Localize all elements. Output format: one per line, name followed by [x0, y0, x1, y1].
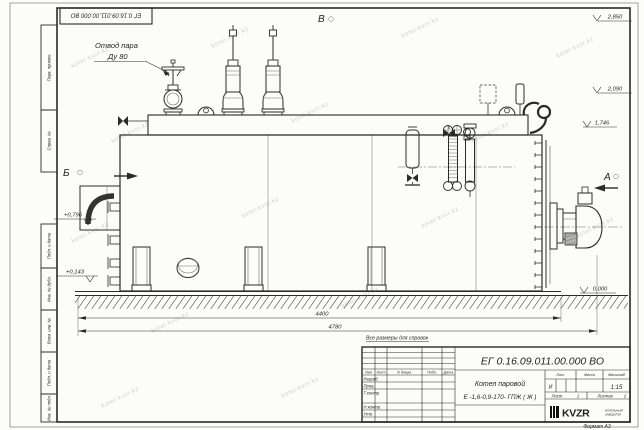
lit-header: Лит.: [555, 373, 564, 377]
format-label: Формат А3: [583, 424, 611, 430]
logo-text: KVZR: [562, 408, 590, 420]
steam-outlet-label-line2: Ду 80: [107, 52, 128, 61]
elevation-value: 0,000: [593, 287, 608, 293]
boiler-body: [120, 135, 542, 291]
list-label: Лист: [551, 393, 563, 398]
reference-note: Все размеры для справок: [366, 336, 429, 342]
col-data: Дата: [443, 370, 453, 374]
manhole-hatch: [177, 258, 199, 278]
flipped-doc-number-box: ЕГ 0.16.09.011.00.000 ВО: [60, 8, 152, 24]
stamp-inv-podl: Инв. № подл.: [47, 395, 52, 421]
support-leg: [244, 247, 263, 292]
support-legs: [132, 247, 386, 292]
row-razrab: Разраб.: [364, 376, 379, 381]
flipped-doc-number: ЕГ 0.16.09.011.00.000 ВО: [70, 12, 141, 18]
row-utv: Утв.: [364, 411, 374, 416]
support-leg: [367, 247, 386, 292]
title-doc-number: ЕГ 0.16.09.011.00.000 ВО: [481, 356, 604, 368]
safety-valve: [222, 25, 244, 115]
listov-value: 2: [623, 393, 627, 398]
view-marker-v: В: [318, 14, 333, 25]
col-izm: Изм: [365, 370, 372, 374]
drum-top-band: [148, 115, 528, 135]
steam-outlet-label-line1: Отвод пара: [95, 41, 138, 50]
phantom-outline: [480, 85, 496, 103]
dimension-4780: 4780: [78, 325, 597, 333]
lifting-lug-icon: [499, 107, 515, 115]
elevation-2850: 2,850: [593, 15, 632, 22]
lit-value: И: [549, 385, 553, 391]
elevation-value: 1,746: [595, 121, 610, 127]
col-podp: Подп.: [427, 370, 437, 374]
row-tkontr: Т.контр.: [364, 390, 381, 395]
row-nkontr: Н.контр.: [364, 404, 382, 409]
view-marker-a: А: [594, 172, 618, 192]
rear-nozzles: [108, 201, 120, 287]
ground-line: [75, 292, 628, 309]
lifting-lug-icon: [198, 107, 214, 115]
elevation-value: +0,143: [66, 270, 85, 276]
stamp-sprav-no: Справ. №: [47, 131, 52, 150]
view-marker-b: Б: [63, 168, 138, 180]
elevation-1746: 1,746: [583, 121, 617, 128]
dimension-4400: 4400: [78, 312, 561, 320]
manufacturer-logo: KVZR КОТЕЛЬНЫЙ ЗАВОД РЭП: [550, 406, 623, 420]
elevation-value: 2,850: [607, 15, 623, 21]
view-a-label: А: [603, 172, 611, 183]
product-name-line1: Котел паровой: [475, 380, 525, 388]
reference-note-text: Все размеры для справок: [366, 336, 429, 342]
smoke-box: [80, 186, 120, 230]
steam-outlet-valve: [162, 60, 184, 115]
list-value: 1: [577, 393, 579, 398]
burner-motor: [565, 233, 577, 245]
product-name-line2: Е -1,6-0,9-170- ГПЖ ( Ж ): [463, 394, 536, 401]
elevation-2090: 2,090: [593, 87, 632, 94]
row-prov: Пров.: [364, 383, 375, 388]
masshtab-value: 1:15: [611, 385, 623, 391]
stamp-perv-primen: Перв. примен.: [47, 54, 52, 82]
massa-header: Масса: [584, 373, 595, 377]
listov-label: Листов: [596, 393, 613, 398]
stamp-podp-data-1: Подп. и дата: [47, 232, 52, 259]
steam-outlet-annotation: Отвод пара Ду 80: [94, 41, 170, 76]
dimension-value: 4780: [329, 325, 343, 331]
logo-subtext-line2: ЗАВОД РЭП: [605, 413, 622, 417]
burner-assembly: [544, 187, 622, 249]
elevation-marks: 2,850 2,090 1,746 0,000 +0,796: [54, 15, 632, 294]
col-list: Лист: [375, 370, 385, 374]
drain-stub-valve: [118, 116, 148, 126]
stamp-vzam-inv: Взам. инв. №: [47, 318, 52, 344]
casing-seams: [268, 135, 476, 291]
safety-valve: [262, 25, 284, 115]
view-v-label: В: [318, 14, 325, 25]
elevation-value: +0,796: [64, 213, 83, 219]
elevation-0143: +0,143: [56, 270, 98, 283]
elevation-0000: 0,000: [580, 287, 616, 294]
dimension-value: 4400: [316, 312, 330, 318]
view-b-label: Б: [63, 168, 70, 179]
technical-drawing: ЕГ 0.16.09.011.00.000 ВО Перв. примен. С…: [0, 0, 644, 430]
elevation-value: 2,090: [607, 87, 623, 93]
margin-stamp-column: Перв. примен. Справ. № Подп. и дата Инв.…: [41, 25, 57, 422]
masshtab-header: Масштаб: [608, 373, 626, 377]
stamp-inv-dubl: Инв. № дубл.: [47, 276, 52, 302]
title-block: Изм Лист N докум. Подп. Дата Разраб. Про…: [362, 347, 630, 422]
front-plate-bolts: [535, 141, 542, 289]
support-leg: [132, 247, 151, 292]
drawing-sheet: kotel-kvzr.kz kotel-kvzr.kz kotel-kvzr.k…: [0, 0, 644, 430]
water-column-vessel: [405, 127, 420, 185]
col-dokum: N докум.: [397, 370, 412, 374]
stamp-podp-data-2: Подп. и дата: [47, 359, 52, 386]
